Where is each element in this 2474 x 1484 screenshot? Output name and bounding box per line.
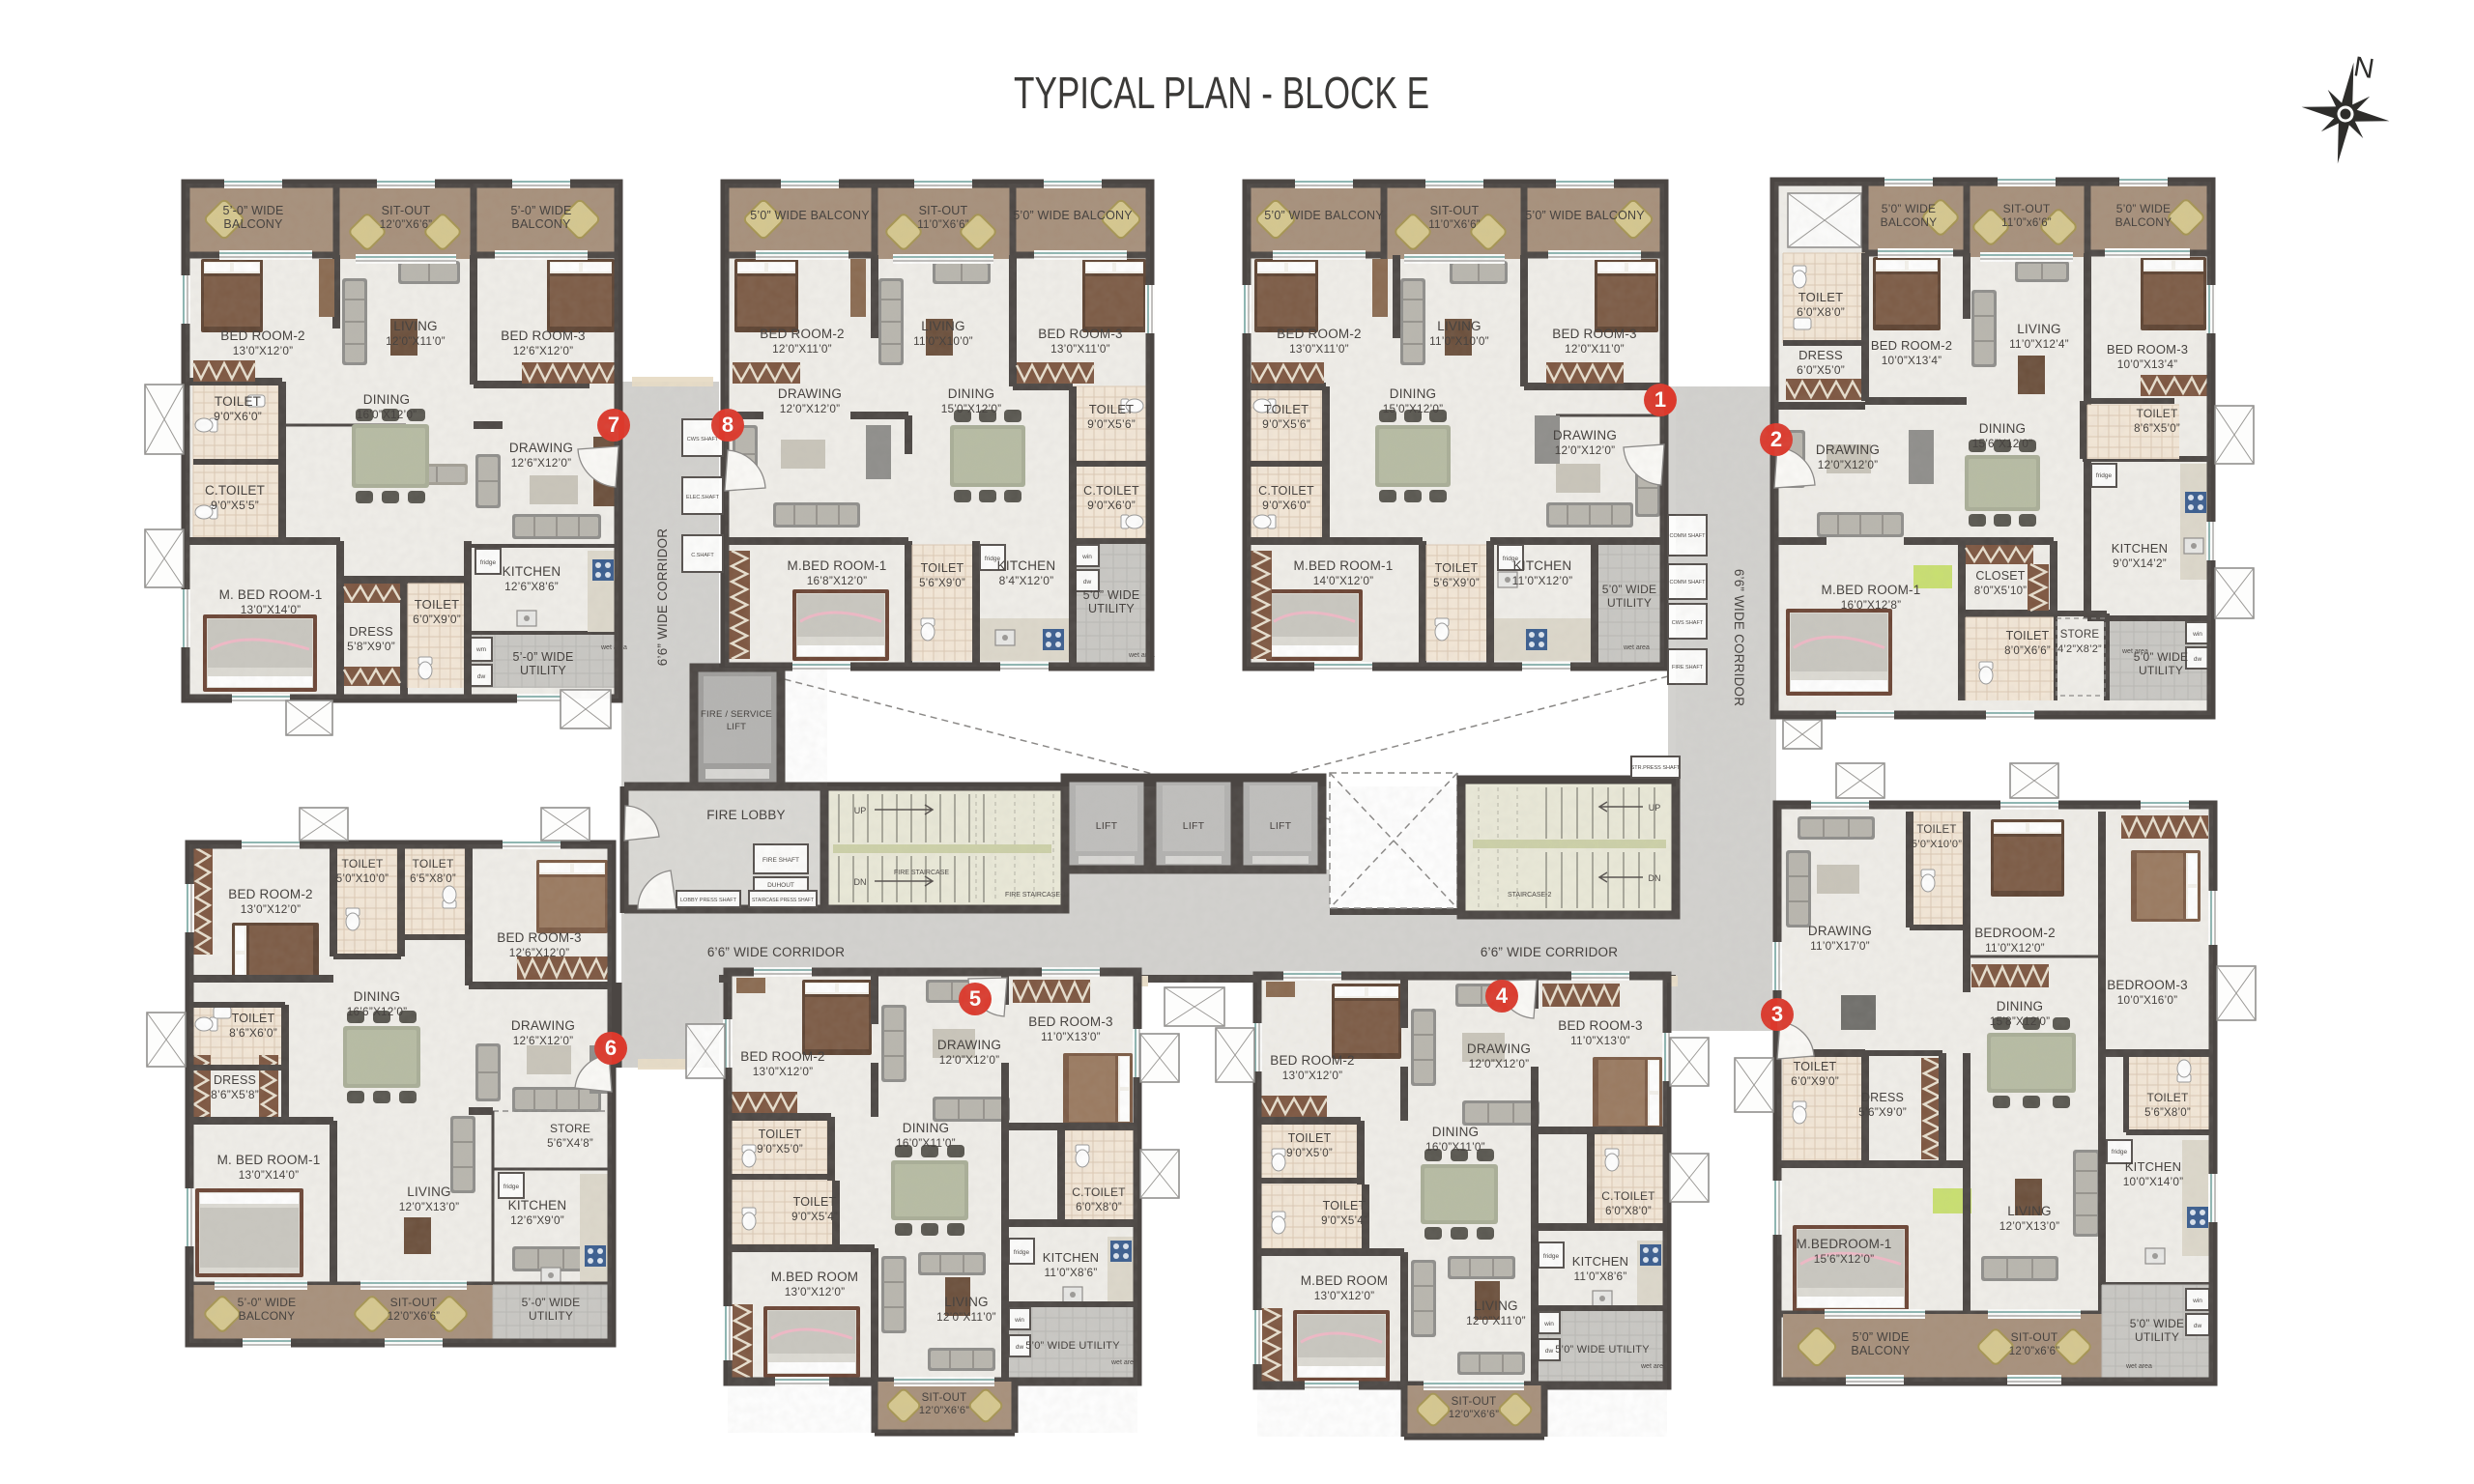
svg-text:LIFT: LIFT [1183, 820, 1205, 832]
svg-text:5’0” WIDE BALCONY: 5’0” WIDE BALCONY [1013, 209, 1133, 222]
svg-text:5’0” WIDE BALCONY: 5’0” WIDE BALCONY [1525, 209, 1645, 222]
svg-text:6’6” WIDE CORRIDOR: 6’6” WIDE CORRIDOR [655, 528, 670, 666]
svg-text:STR.PRESS SHAFT: STR.PRESS SHAFT [1631, 765, 1681, 771]
svg-text:5’0” WIDEBALCONY: 5’0” WIDEBALCONY [1881, 202, 1938, 229]
svg-text:6’6” WIDE CORRIDOR: 6’6” WIDE CORRIDOR [1481, 945, 1618, 959]
svg-text:TOILET8’6”X6’0”: TOILET8’6”X6’0” [229, 1012, 277, 1040]
svg-text:SIT-OUT12’0”X6’6”: SIT-OUT12’0”X6’6” [919, 1392, 969, 1416]
svg-text:5’-0” WIDEBALCONY: 5’-0” WIDEBALCONY [510, 204, 571, 231]
svg-text:5’0” WIDE UTILITY: 5’0” WIDE UTILITY [1025, 1340, 1120, 1352]
svg-text:C.TOILET9’0”X6’0”: C.TOILET9’0”X6’0” [1083, 484, 1139, 512]
svg-text:6’6” WIDE CORRIDOR: 6’6” WIDE CORRIDOR [1732, 569, 1746, 706]
svg-text:FIRE / SERVICE: FIRE / SERVICE [701, 709, 772, 720]
svg-text:5’0” WIDEBALCONY: 5’0” WIDEBALCONY [1851, 1330, 1911, 1357]
svg-text:5’0” WIDEUTILITY: 5’0” WIDEUTILITY [1083, 588, 1140, 615]
svg-text:5’0” WIDE BALCONY: 5’0” WIDE BALCONY [750, 209, 870, 222]
svg-text:5’0” WIDEUTILITY: 5’0” WIDEUTILITY [1602, 583, 1656, 610]
svg-text:5’0” WIDEBALCONY: 5’0” WIDEBALCONY [2115, 202, 2172, 229]
svg-text:DRESS5’6”X9’0”: DRESS5’6”X9’0” [1858, 1091, 1907, 1119]
svg-text:SIT-OUT12’0”X6’6”: SIT-OUT12’0”X6’6” [1449, 1396, 1499, 1420]
svg-text:DRESS8’6”X5’8”: DRESS8’6”X5’8” [211, 1073, 259, 1101]
svg-text:5’-0” WIDEBALCONY: 5’-0” WIDEBALCONY [222, 204, 283, 231]
svg-text:5’-0” WIDEUTILITY: 5’-0” WIDEUTILITY [512, 650, 573, 677]
svg-text:LIFT: LIFT [727, 722, 746, 732]
svg-text:5’0” WIDEUTILITY: 5’0” WIDEUTILITY [2134, 650, 2188, 677]
svg-text:5’0” WIDEUTILITY: 5’0” WIDEUTILITY [2130, 1317, 2184, 1344]
svg-text:TOILET6’0”X9’0”: TOILET6’0”X9’0” [1791, 1060, 1839, 1088]
svg-text:5’-0” WIDEBALCONY: 5’-0” WIDEBALCONY [238, 1296, 297, 1323]
svg-text:C.TOILET9’0”X6’0”: C.TOILET9’0”X6’0” [1258, 484, 1314, 512]
svg-text:LIFT: LIFT [1270, 820, 1292, 832]
svg-text:TYPICAL PLAN - BLOCK E: TYPICAL PLAN - BLOCK E [1014, 68, 1429, 118]
svg-text:FIRE LOBBY: FIRE LOBBY [706, 808, 786, 822]
svg-text:5’-0” WIDEUTILITY: 5’-0” WIDEUTILITY [522, 1296, 581, 1323]
svg-text:5’0” WIDE UTILITY: 5’0” WIDE UTILITY [1555, 1344, 1650, 1356]
svg-text:5’0” WIDE BALCONY: 5’0” WIDE BALCONY [1264, 209, 1384, 222]
svg-text:LIFT: LIFT [1096, 820, 1118, 832]
svg-text:6’6” WIDE CORRIDOR: 6’6” WIDE CORRIDOR [707, 945, 845, 959]
